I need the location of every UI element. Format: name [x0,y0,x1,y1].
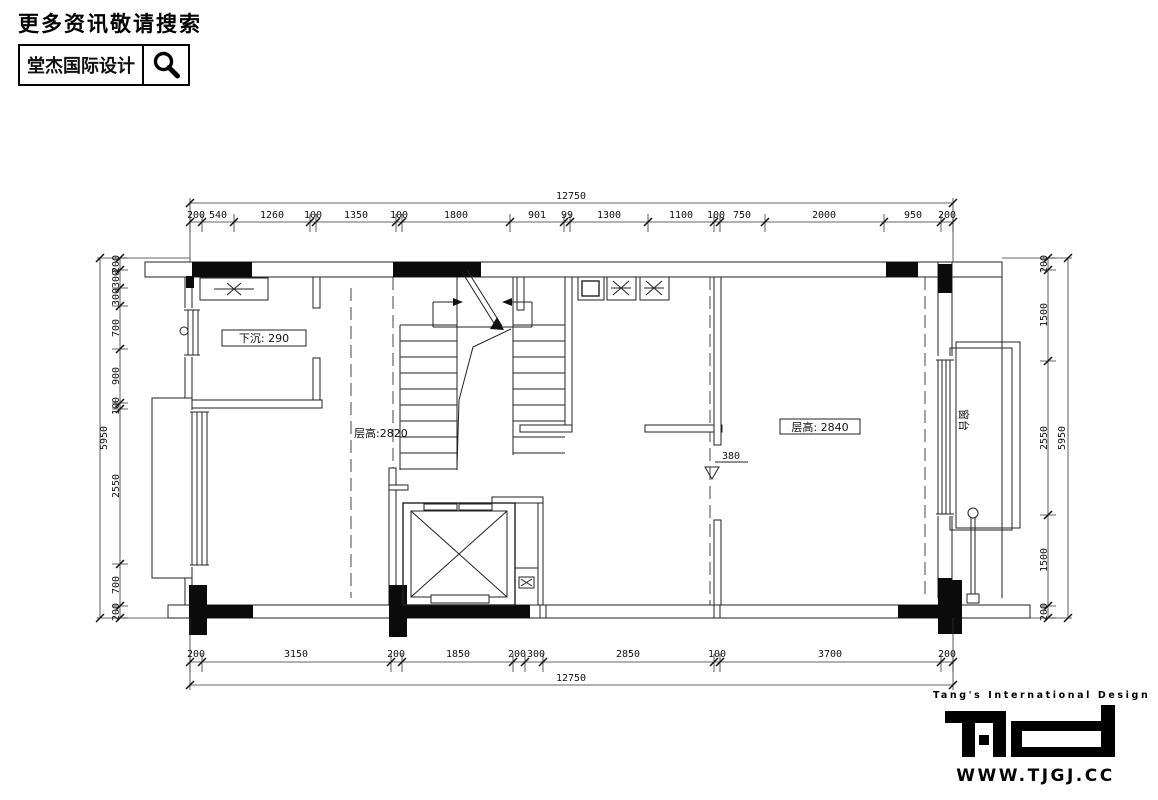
dim: 540 [209,210,227,221]
dim: 100 [111,397,122,415]
dim: 100 [707,210,725,221]
dim-bottom-overall: 12750 [556,673,586,684]
dim: 100 [304,210,322,221]
footer-website: WWW.TJGJ.CC [933,766,1138,786]
dim: 2550 [1039,426,1050,450]
dim: 100 [708,649,726,660]
wall-outlines [145,262,1030,618]
dimension-text-bottom: 12750 200 3150 200 1850 200 300 2850 100… [187,649,956,684]
dim: 200 [1039,603,1050,621]
dim: 1100 [669,210,693,221]
floor-height-left-label: 层高:2820 [354,426,408,440]
dim: 99 [561,210,573,221]
step-height-label: 380 [722,451,740,462]
dim: 2850 [616,649,640,660]
dim: 1300 [597,210,621,221]
dim: 1260 [260,210,284,221]
footer-tagline: Tang's International Design [933,690,1138,701]
dim: 1500 [1039,548,1050,572]
dimension-text-top: 12750 200 540 1260 100 1350 100 1800 901… [187,191,956,221]
footer-logo-block: Tang's International Design WWW.TJGJ.CC [933,690,1138,786]
dim: 2550 [111,474,122,498]
dim: 900 [111,367,122,385]
dim: 300 [111,288,122,306]
dim: 3150 [284,649,308,660]
dim: 1800 [444,210,468,221]
sunken-label: 下沉: 290 [239,332,289,345]
dim-top-overall: 12750 [556,191,586,202]
interior-walls [152,277,722,618]
floor-plan-drawing: 窗台 下沉: 290 层高:2820 层高: 2840 380 12750 20… [0,0,1158,800]
dim: 750 [733,210,751,221]
kitchen-fixtures [200,277,669,300]
left-bay-window [152,308,211,578]
staircase [400,270,565,470]
structural-columns [186,262,962,637]
dim: 700 [111,319,122,337]
dim: 1850 [446,649,470,660]
floor-height-right-label: 层高: 2840 [791,420,848,434]
dim: 200 [1039,255,1050,273]
dim-left-overall: 5950 [99,426,110,450]
dimension-text-right: 5950 200 1500 2550 1500 200 [1039,255,1068,621]
dim: 300 [111,270,122,288]
dim: 2000 [812,210,836,221]
dim: 1350 [344,210,368,221]
dim: 3700 [818,649,842,660]
dim: 300 [527,649,545,660]
tid-logo [943,705,1128,759]
dim-right-overall: 5950 [1057,426,1068,450]
dim: 200 [187,210,205,221]
dim: 700 [111,576,122,594]
dim: 100 [390,210,408,221]
dim: 200 [387,649,405,660]
elevator-shaft [403,503,534,605]
dim: 200 [111,603,122,621]
dim: 200 [508,649,526,660]
dim: 200 [938,210,956,221]
dim: 200 [187,649,205,660]
dim: 200 [938,649,956,660]
dim: 1500 [1039,303,1050,327]
bay-window-label: 窗台 [957,409,971,431]
dim: 901 [528,210,546,221]
dim: 950 [904,210,922,221]
